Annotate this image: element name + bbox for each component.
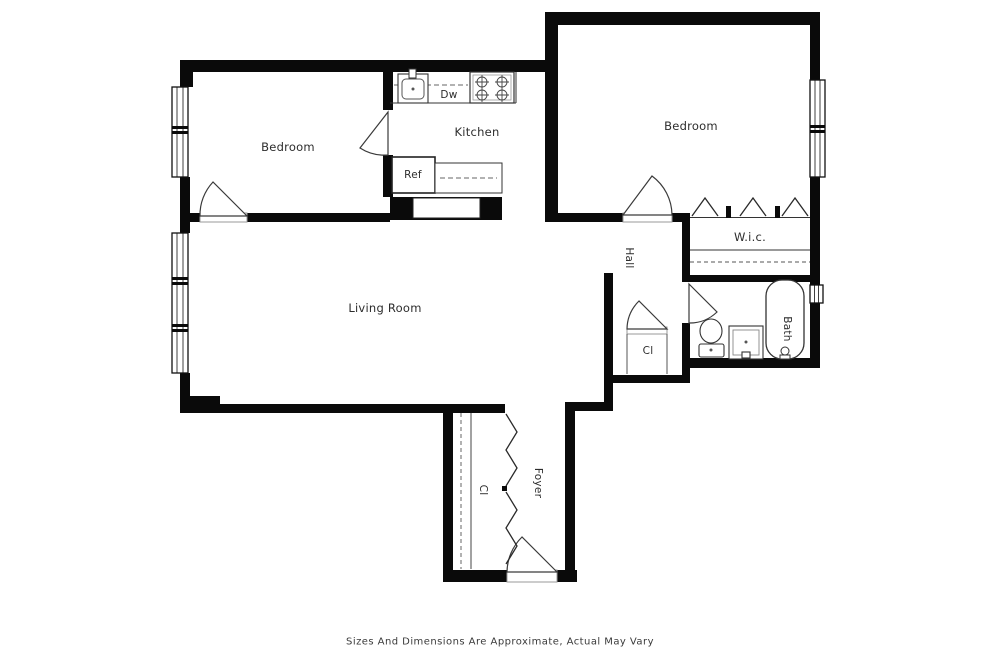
bedroom-right-window xyxy=(810,80,825,177)
windows xyxy=(172,80,825,373)
bathtub-icon xyxy=(766,280,804,359)
toilet-icon xyxy=(699,319,724,357)
closet-details xyxy=(461,198,810,569)
kitchen-pass-through-opening xyxy=(413,198,480,218)
disclaimer-text: Sizes And Dimensions Are Approximate, Ac… xyxy=(346,637,654,648)
bath-door-arc xyxy=(689,284,717,323)
door-thresholds xyxy=(200,198,672,582)
walk-in-closet-shelving xyxy=(690,218,810,263)
kitchen-counter-island xyxy=(435,163,502,193)
bedroom-left-window xyxy=(172,87,188,177)
bathroom-sink-icon xyxy=(729,326,763,359)
kitchen-bedroom-door-arc xyxy=(360,112,388,155)
bath-fixtures xyxy=(699,280,804,359)
wic-bifold-doors xyxy=(692,198,808,218)
living-room-window xyxy=(172,233,188,373)
bedroom-right-door-arc xyxy=(623,176,672,215)
hall-closet-shelving xyxy=(627,334,667,374)
foyer-closet-details xyxy=(461,413,517,569)
floor-plan-page: Bedroom Kitchen Bedroom W.i.c. Living Ro… xyxy=(0,0,1000,666)
accordion-door-handle xyxy=(502,486,507,491)
foyer-closet-accordion-door xyxy=(506,414,517,564)
kitchen-sink-icon xyxy=(398,69,428,103)
refrigerator-icon xyxy=(392,157,435,193)
hall-closet-door-arc xyxy=(627,301,667,329)
stove-icon xyxy=(470,72,514,103)
floor-plan-drawing xyxy=(0,0,1000,666)
bath-window xyxy=(810,285,823,303)
kitchen-fixtures xyxy=(390,69,516,193)
bedroom-left-door-arc xyxy=(200,182,247,216)
